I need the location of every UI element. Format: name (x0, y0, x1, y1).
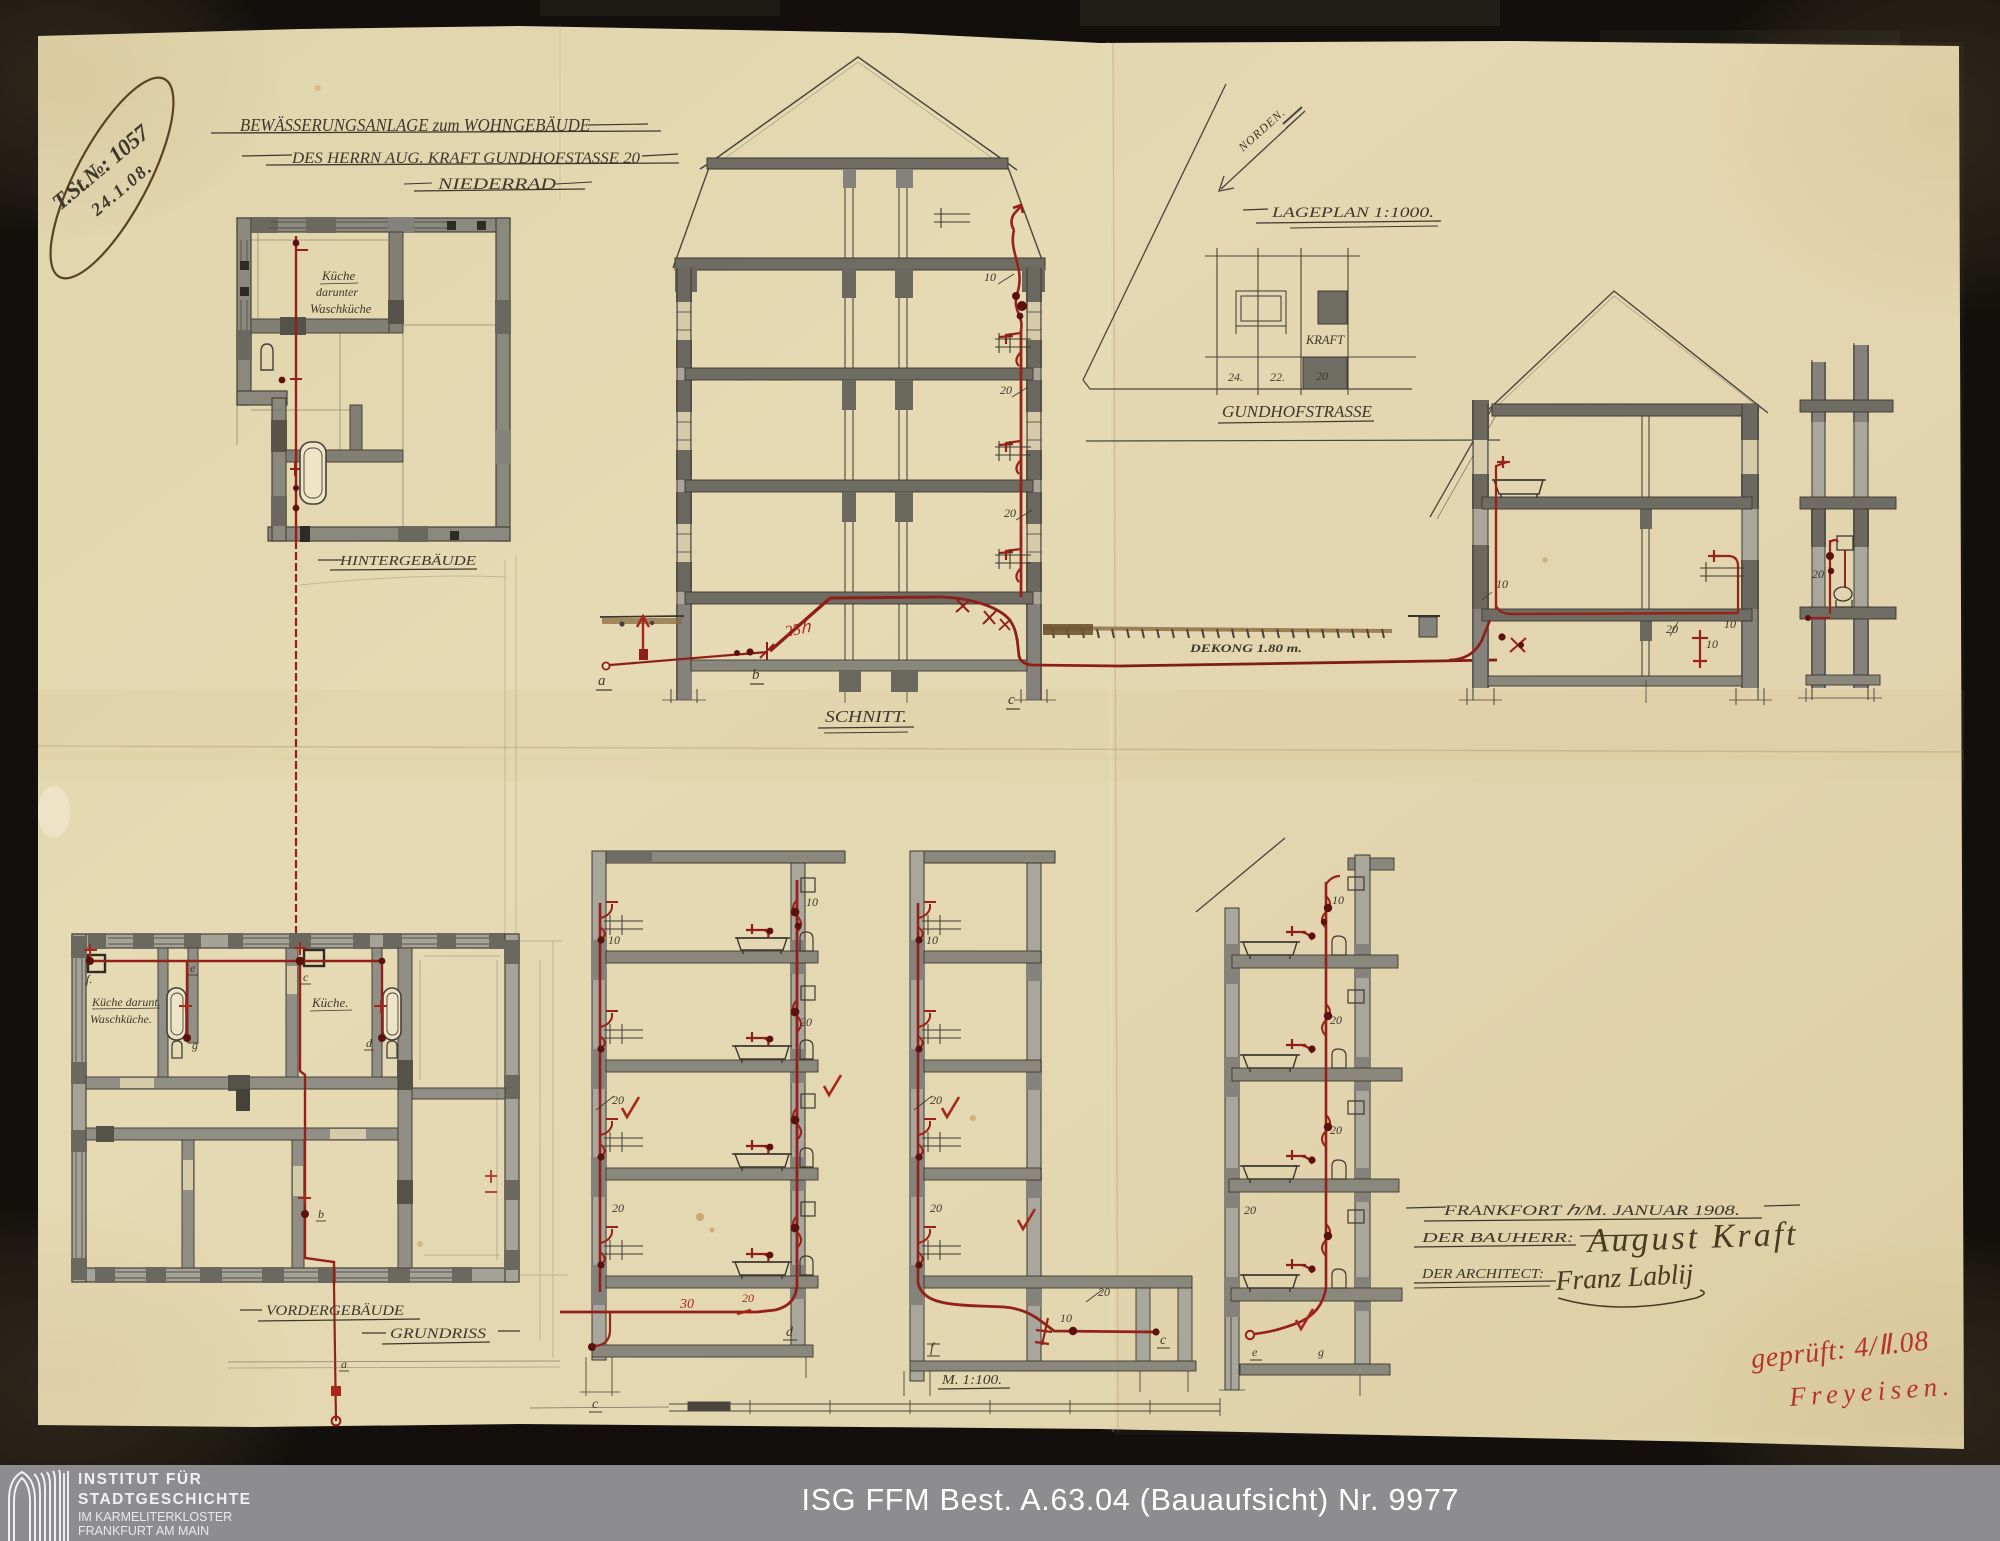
svg-text:20: 20 (1004, 506, 1016, 520)
svg-text:KRAFT: KRAFT (1305, 333, 1345, 347)
svg-text:FRANKFORT ℎ/M. JANUAR 1908.: FRANKFORT ℎ/M. JANUAR 1908. (1443, 1203, 1740, 1219)
svg-text:20: 20 (1812, 567, 1824, 581)
svg-text:20: 20 (1330, 1013, 1342, 1027)
svg-text:LAGEPLAN 1:1000.: LAGEPLAN 1:1000. (1271, 205, 1434, 221)
svg-text:d: d (366, 1036, 373, 1050)
svg-text:g: g (1318, 1345, 1324, 1359)
svg-text:darunter: darunter (316, 285, 358, 299)
svg-text:22.: 22. (1270, 370, 1285, 384)
svg-text:M. 1:100.: M. 1:100. (941, 1373, 1002, 1388)
svg-text:b: b (318, 1207, 324, 1221)
svg-text:24.: 24. (1228, 370, 1243, 384)
svg-text:DEKONG 1.80 m.: DEKONG 1.80 m. (1189, 641, 1302, 655)
svg-text:c: c (303, 970, 309, 984)
svg-text:c: c (592, 1397, 599, 1412)
svg-text:FRANKFURT AM MAIN: FRANKFURT AM MAIN (78, 1524, 210, 1538)
svg-text:20: 20 (930, 1093, 942, 1107)
svg-text:Waschküche: Waschküche (310, 302, 372, 316)
svg-text:Küche.: Küche. (311, 995, 348, 1010)
svg-text:Waschküche.: Waschküche. (90, 1012, 152, 1026)
svg-text:SCHNITT.: SCHNITT. (825, 707, 907, 726)
svg-text:e: e (1252, 1345, 1258, 1359)
svg-text:e: e (190, 961, 196, 975)
svg-text:VORDERGEBÄUDE: VORDERGEBÄUDE (266, 1302, 404, 1319)
svg-text:10: 10 (1332, 893, 1344, 907)
svg-text:ISG FFM Best. A.63.04 (Bauaufs: ISG FFM Best. A.63.04 (Bauaufsicht) Nr. … (802, 1483, 1459, 1517)
svg-text:20: 20 (930, 1201, 942, 1215)
svg-text:20: 20 (800, 1015, 812, 1029)
svg-text:20: 20 (742, 1291, 754, 1305)
svg-text:20: 20 (612, 1201, 624, 1215)
svg-text:10: 10 (806, 895, 818, 909)
svg-text:GUNDHOFSTRASSE: GUNDHOFSTRASSE (1222, 402, 1372, 421)
svg-text:10: 10 (1060, 1311, 1072, 1325)
svg-text:Küche darunt.: Küche darunt. (91, 995, 161, 1009)
svg-text:IM KARMELITERKLOSTER: IM KARMELITERKLOSTER (78, 1510, 233, 1524)
svg-text:d: d (786, 1325, 794, 1340)
svg-text:INSTITUT FÜR: INSTITUT FÜR (78, 1471, 202, 1488)
svg-text:10: 10 (1724, 617, 1736, 631)
svg-text:August Kraft: August Kraft (1585, 1216, 1798, 1260)
svg-text:c: c (1160, 1333, 1167, 1348)
svg-text:20: 20 (1666, 622, 1678, 636)
svg-text:b: b (752, 667, 760, 683)
svg-text:STADTGESCHICHTE: STADTGESCHICHTE (78, 1491, 251, 1508)
svg-text:c: c (1008, 692, 1015, 708)
svg-text:g: g (192, 1038, 198, 1052)
svg-text:DER ARCHITECT:: DER ARCHITECT: (1421, 1267, 1544, 1282)
svg-text:30: 30 (679, 1297, 694, 1312)
svg-text:20: 20 (612, 1093, 624, 1107)
svg-text:Küche: Küche (321, 268, 355, 283)
svg-text:10: 10 (984, 270, 996, 284)
svg-text:f.: f. (86, 972, 92, 986)
svg-text:20: 20 (1316, 369, 1328, 383)
svg-text:HINTERGEBÄUDE: HINTERGEBÄUDE (339, 552, 477, 569)
svg-text:a: a (341, 1357, 347, 1371)
svg-text:20: 20 (1330, 1123, 1342, 1137)
svg-text:10: 10 (1496, 577, 1508, 591)
svg-text:10: 10 (926, 933, 938, 947)
svg-text:20: 20 (1244, 1203, 1256, 1217)
svg-text:10: 10 (608, 933, 620, 947)
svg-text:DER BAUHERR:: DER BAUHERR: (1420, 1231, 1574, 1246)
svg-text:20: 20 (1000, 383, 1012, 397)
svg-text:a: a (598, 673, 606, 689)
svg-text:GRUNDRISS: GRUNDRISS (390, 1326, 487, 1342)
